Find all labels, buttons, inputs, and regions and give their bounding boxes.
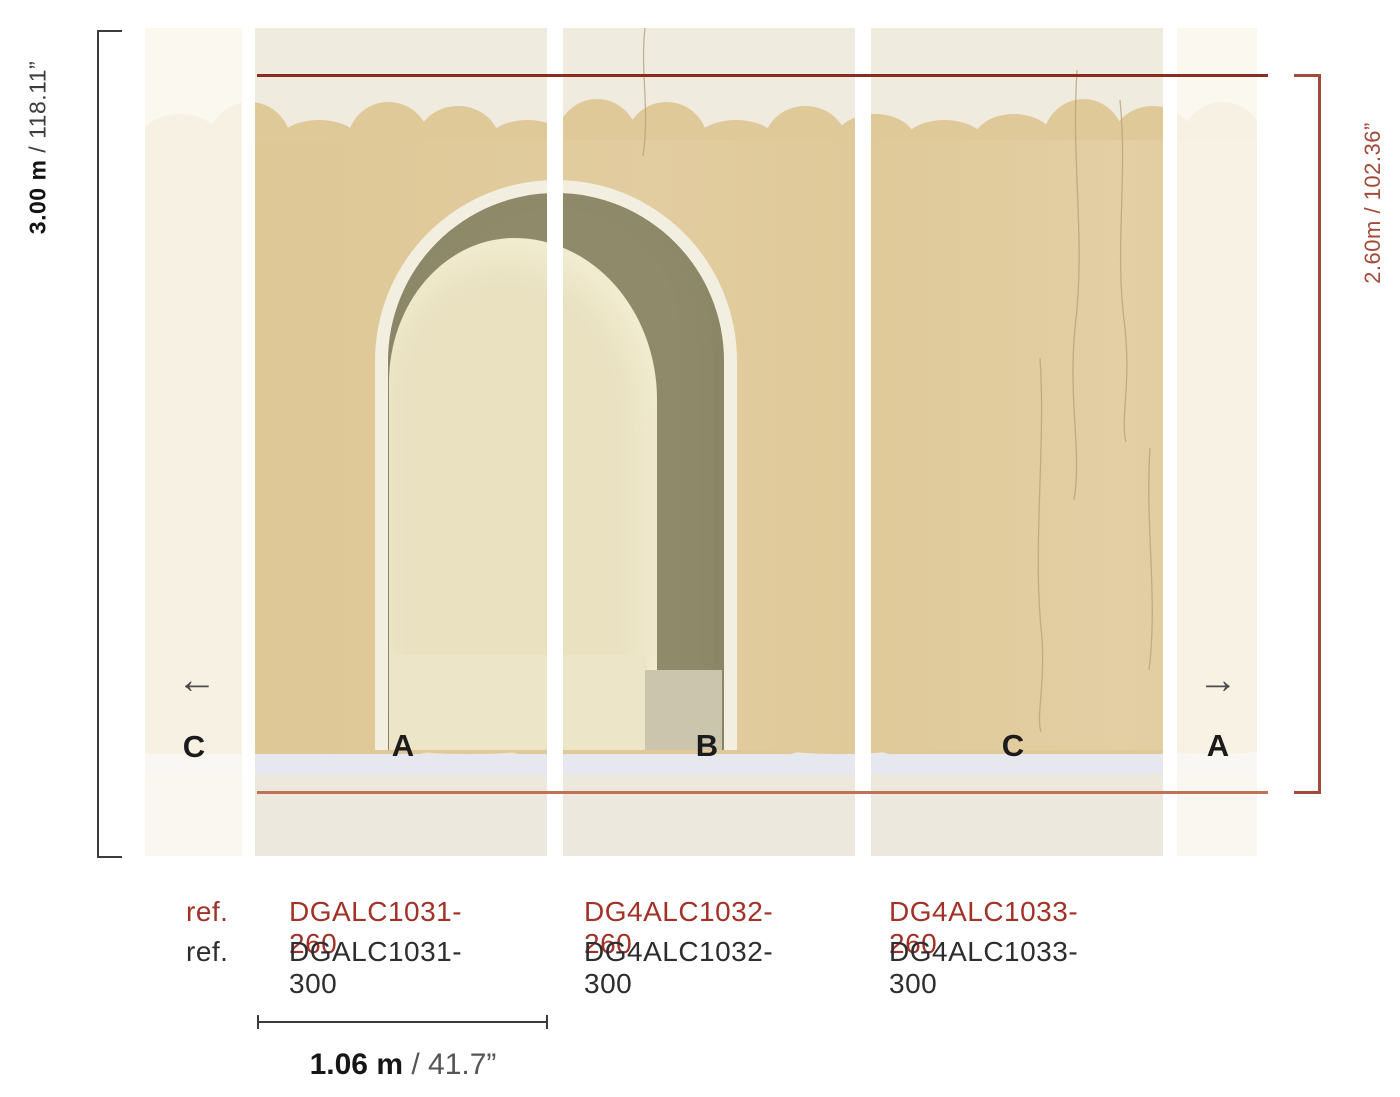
panel-width-imperial: / 41.7” [403,1048,496,1081]
ref-code-panel-b-300: DG4ALC1032-300 [584,936,773,1000]
panel-width-dimension: 1.06 m / 41.7” [237,1048,569,1082]
panel-label-b: B [685,728,729,764]
height-bracket-tick-top [97,30,122,32]
ref-code-panel-a-300: DGALC1031-300 [289,936,462,1000]
panel-gap [855,28,871,856]
panel-width-tick-right [546,1015,548,1029]
ref-code-panel-c-300: DG4ALC1033-300 [889,936,1078,1000]
full-height-metric: 3.00 m [25,160,51,235]
full-height-imperial: / 118.11” [25,61,51,160]
height-bracket-line [97,30,99,858]
trim-height-bracket-tick-bottom [1294,791,1321,794]
ref-prefix-300: ref. [186,936,228,968]
trimmed-height-dimension: 2.60m / 102.36” [1360,96,1386,310]
panel-gap [242,28,255,856]
height-bracket-tick-bottom [97,856,122,858]
arrow-left-icon: ← [167,660,227,700]
arrow-right-icon: → [1188,660,1248,700]
panel-label-a: A [381,728,425,764]
panel-width-tick-left [257,1015,259,1029]
full-height-dimension: 3.00 m / 118.11” [25,22,52,274]
trim-height-line-top [257,74,1268,77]
panel-label-c: C [991,728,1035,764]
panel-label-strip-right: A [1196,728,1240,764]
spec-sheet: 3.00 m / 118.11” 2.60m / 102.36” ← → C A… [0,0,1400,1097]
panel-width-measure-line [257,1021,548,1023]
trim-height-bracket [1318,74,1321,794]
trim-height-bracket-tick-top [1294,74,1321,77]
panel-width-metric: 1.06 m [310,1048,403,1081]
panel-label-strip-left: C [172,729,216,765]
ref-prefix-260: ref. [186,896,228,928]
trim-height-line-bottom [257,791,1268,794]
panel-gap [547,28,563,856]
panel-gap [1163,28,1177,856]
